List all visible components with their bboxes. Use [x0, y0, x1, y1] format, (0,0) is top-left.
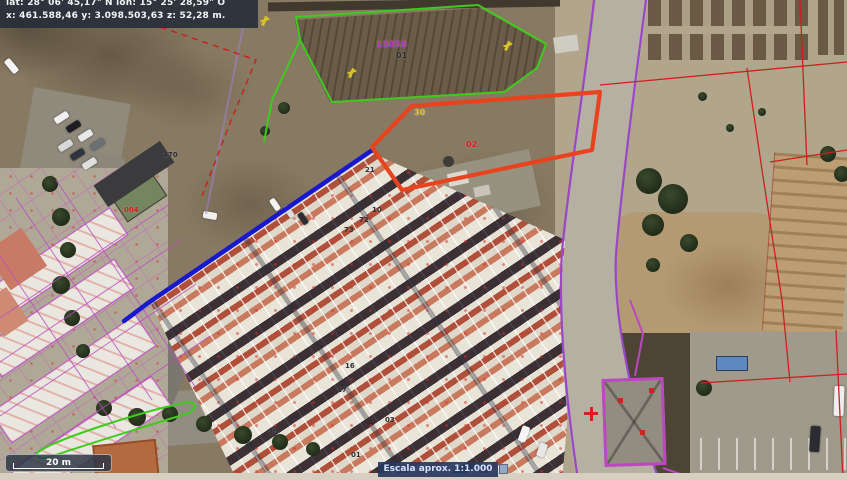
tree [96, 400, 112, 416]
tree [52, 276, 70, 294]
bush [278, 102, 290, 114]
red-annotation-mark [618, 398, 623, 403]
car [809, 426, 821, 453]
tree [196, 416, 212, 432]
scale-bar: 20 m [5, 454, 112, 472]
tree [162, 406, 178, 422]
parking-lines [700, 438, 847, 470]
tree [820, 146, 836, 162]
garden-plots-row [818, 0, 847, 55]
tree [646, 258, 660, 272]
outlined-building [601, 377, 666, 467]
tree [680, 234, 698, 252]
tree [636, 168, 662, 194]
bus-shelter [716, 356, 748, 371]
scale-indicator-handle[interactable] [499, 464, 508, 474]
tree [306, 442, 320, 456]
coordinate-readout-panel: lat: 28° 06' 45,17" N lon: 15° 25' 28,59… [0, 0, 258, 28]
tree [52, 208, 70, 226]
red-annotation-mark [649, 388, 654, 393]
scale-indicator: Escala aprox. 1:1.000 [378, 462, 498, 477]
garden-plots-row [648, 34, 808, 60]
scale-bar-bracket [13, 463, 104, 469]
tree [60, 242, 76, 258]
tree [658, 184, 688, 214]
tree [128, 408, 146, 426]
tree [234, 426, 252, 444]
bush [260, 126, 270, 136]
tree [64, 310, 80, 326]
tree [696, 380, 712, 396]
bush [726, 124, 734, 132]
red-annotation-mark [640, 430, 645, 435]
red-cross-marker [584, 412, 598, 415]
garden-plots-row [648, 0, 808, 26]
bush [758, 108, 766, 116]
tree [42, 176, 58, 192]
coordinate-xyz: x: 461.588,46 y: 3.098.503,63 z: 52,28 m… [6, 10, 252, 23]
bush [698, 92, 707, 101]
water-tank [443, 156, 454, 167]
tree [76, 344, 90, 358]
car [833, 386, 844, 416]
tree [834, 166, 847, 182]
shed-roof [553, 34, 579, 53]
map-viewport[interactable]: 15058013002470004211072731617200103 lat:… [0, 0, 847, 480]
tree [642, 214, 664, 236]
warehouse-roof [762, 152, 847, 335]
coordinate-latlon: lat: 28° 06' 45,17" N lon: 15° 25' 28,59… [6, 0, 252, 10]
tree [272, 434, 288, 450]
